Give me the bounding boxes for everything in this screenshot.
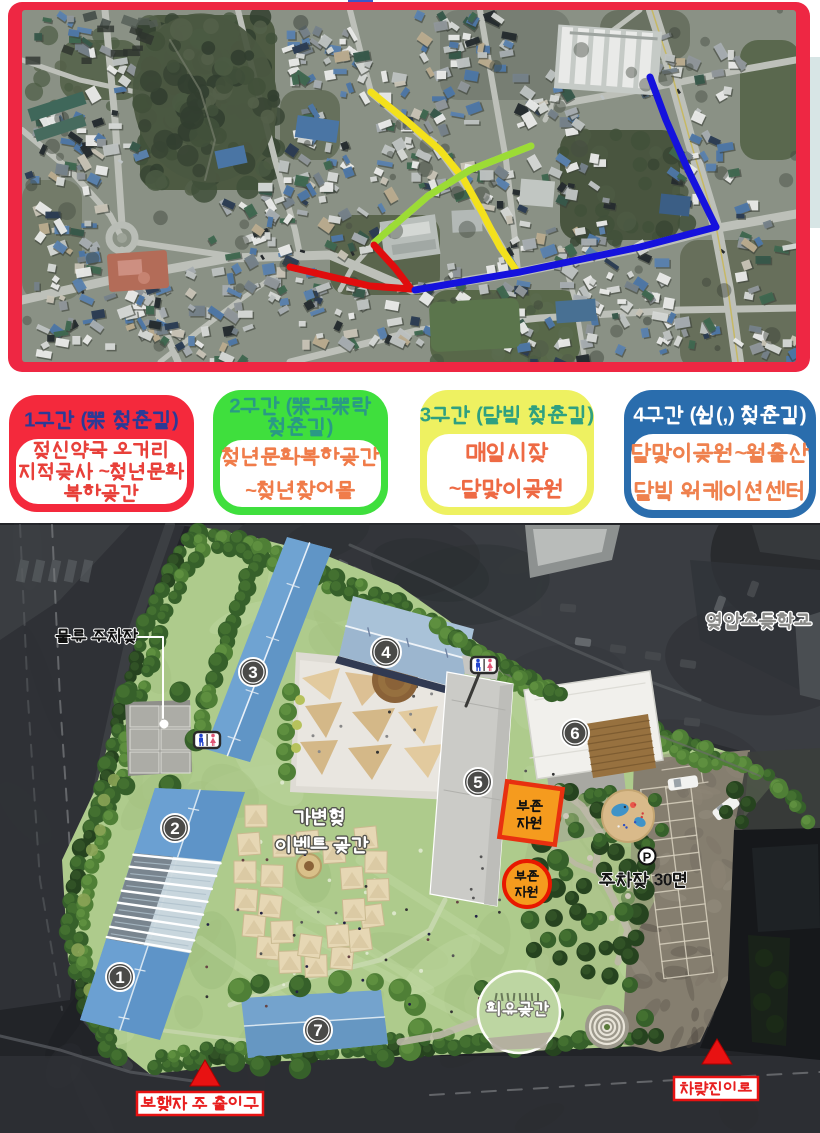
svg-text:): ) bbox=[587, 404, 594, 427]
svg-text:1: 1 bbox=[24, 409, 35, 432]
svg-text:): ) bbox=[327, 416, 334, 439]
svg-text:~: ~ bbox=[245, 479, 257, 502]
svg-text:): ) bbox=[728, 404, 735, 427]
svg-text:(: ( bbox=[286, 395, 293, 418]
svg-text:7: 7 bbox=[313, 1021, 322, 1040]
svg-text:3: 3 bbox=[420, 404, 431, 427]
svg-text:2: 2 bbox=[229, 395, 240, 418]
svg-text:~: ~ bbox=[449, 476, 462, 501]
svg-text:3: 3 bbox=[248, 663, 257, 682]
svg-text:(: ( bbox=[690, 404, 697, 427]
svg-text:~: ~ bbox=[99, 461, 110, 483]
svg-text:5: 5 bbox=[473, 773, 482, 792]
svg-text:0: 0 bbox=[663, 870, 673, 890]
svg-text:): ) bbox=[800, 404, 807, 427]
svg-text:4: 4 bbox=[633, 404, 645, 427]
svg-text:4: 4 bbox=[381, 643, 391, 662]
svg-text:6: 6 bbox=[570, 724, 579, 743]
svg-text:(: ( bbox=[80, 409, 87, 432]
svg-text:): ) bbox=[172, 409, 179, 432]
svg-text:~: ~ bbox=[734, 440, 747, 465]
svg-text:1: 1 bbox=[115, 968, 124, 987]
svg-text:(: ( bbox=[476, 404, 483, 427]
svg-text:P: P bbox=[643, 850, 652, 865]
svg-text:2: 2 bbox=[170, 819, 179, 838]
